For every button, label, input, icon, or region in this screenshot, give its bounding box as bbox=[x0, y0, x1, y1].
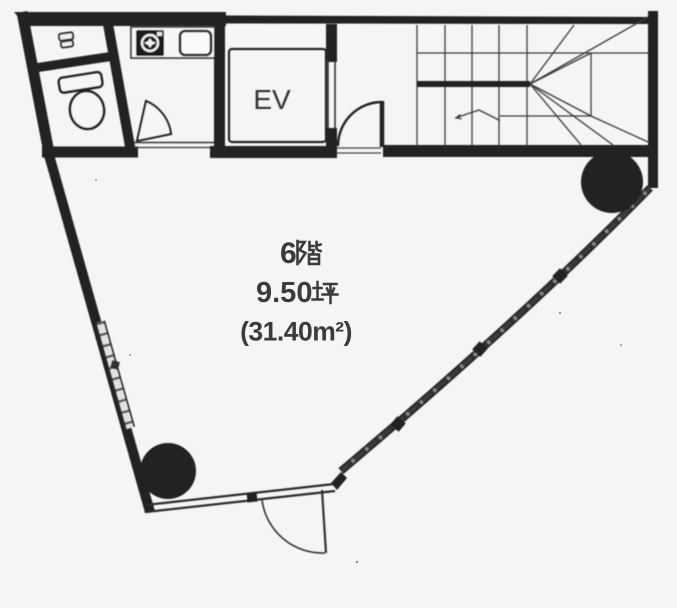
svg-text:9.50: 9.50 bbox=[256, 277, 312, 309]
svg-text:(31.40m²): (31.40m²) bbox=[240, 317, 352, 347]
svg-text:6: 6 bbox=[280, 237, 297, 270]
svg-text:EV: EV bbox=[253, 84, 291, 115]
